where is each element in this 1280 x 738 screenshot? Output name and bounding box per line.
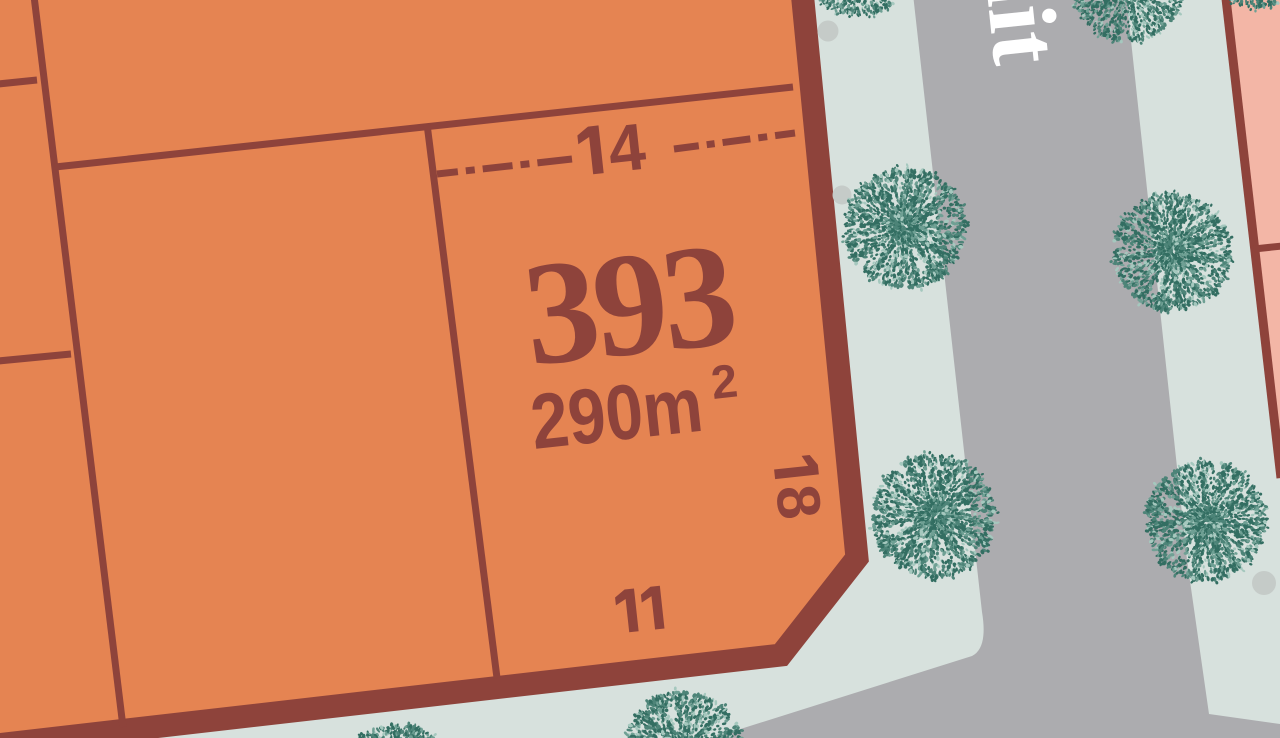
svg-text:290m: 290m	[526, 360, 706, 466]
svg-text:lit: lit	[965, 0, 1080, 69]
